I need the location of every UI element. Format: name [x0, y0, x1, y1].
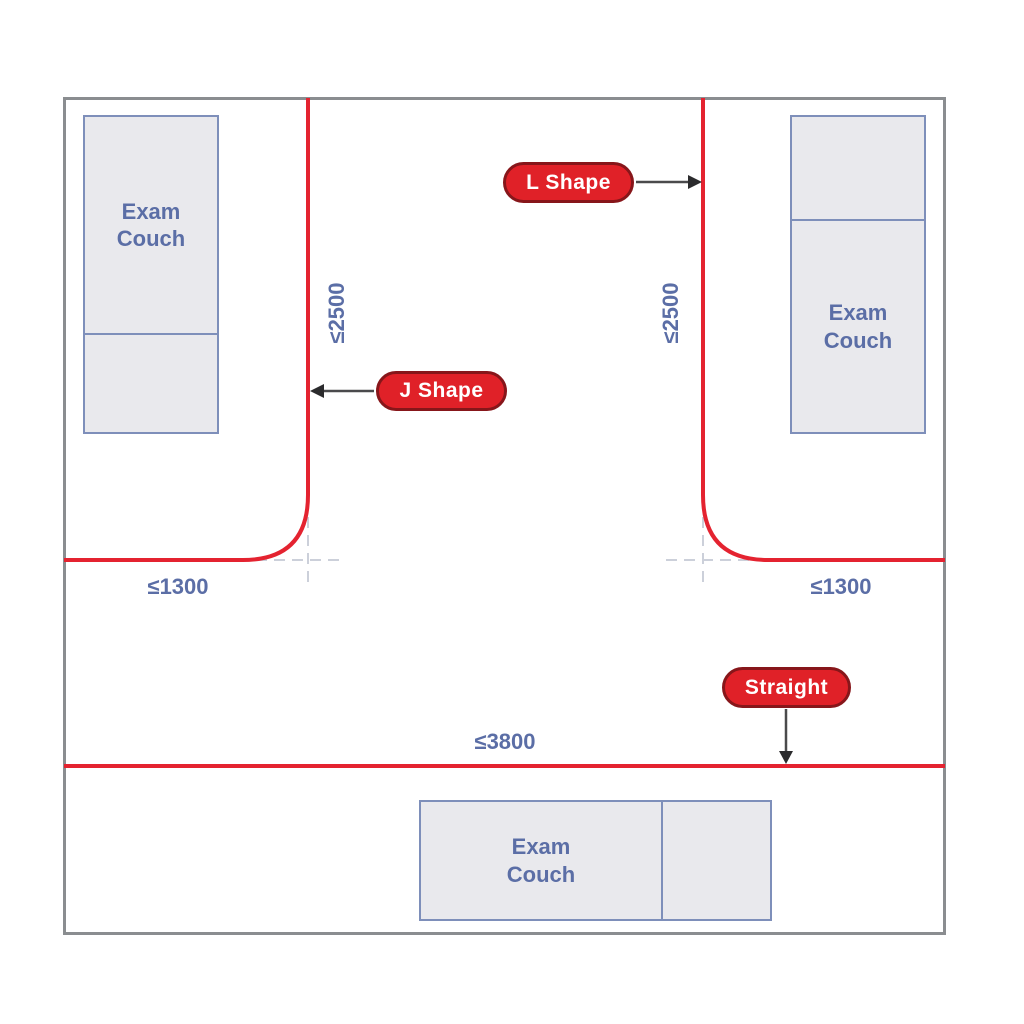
exam-couch-label: Exam Couch — [792, 219, 924, 434]
dimension-left-horizontal: ≤1300 — [147, 574, 208, 600]
curtain-track-diagram: Exam Couch Exam Couch Exam Couch — [0, 0, 1024, 1024]
dimension-left-vertical: ≤2500 — [324, 282, 350, 343]
j-shape-badge: J Shape — [376, 371, 507, 411]
j-shape-badge-label: J Shape — [399, 379, 483, 403]
straight-badge: Straight — [722, 667, 851, 708]
dimension-right-vertical: ≤2500 — [658, 282, 684, 343]
exam-couch-top-left: Exam Couch — [83, 115, 219, 434]
l-shape-badge-label: L Shape — [526, 171, 611, 195]
dimension-right-horizontal: ≤1300 — [810, 574, 871, 600]
exam-couch-label: Exam Couch — [85, 117, 217, 333]
straight-badge-label: Straight — [745, 676, 828, 700]
exam-couch-top-right: Exam Couch — [790, 115, 926, 434]
exam-couch-label: Exam Couch — [421, 802, 661, 919]
dimension-straight: ≤3800 — [474, 729, 535, 755]
couch-section-divider — [83, 333, 219, 335]
exam-couch-bottom: Exam Couch — [419, 800, 772, 921]
couch-section-divider — [661, 800, 663, 921]
l-shape-badge: L Shape — [503, 162, 634, 203]
